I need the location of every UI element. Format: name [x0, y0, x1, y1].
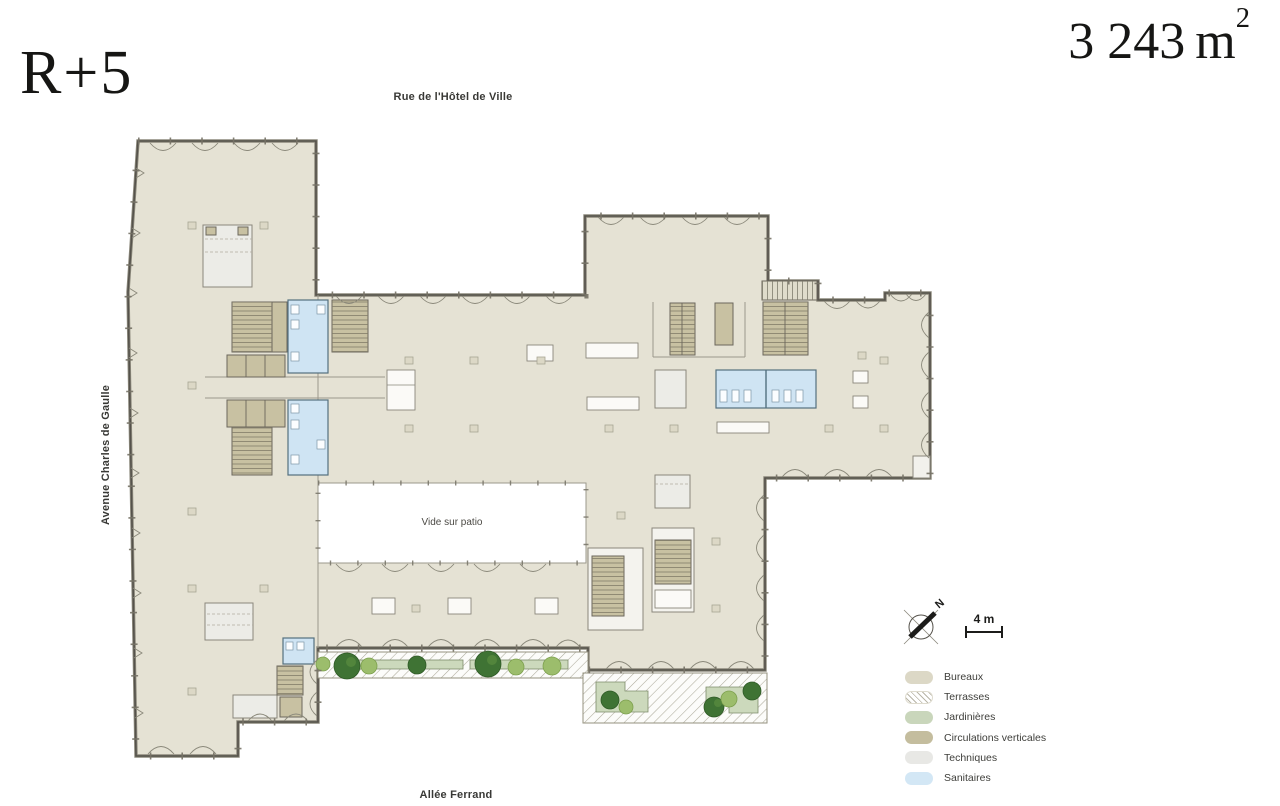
- legend-item-bureaux: Bureaux: [905, 667, 1046, 687]
- legend-label: Bureaux: [944, 671, 983, 683]
- legend-item-jardinieres: Jardinières: [905, 707, 1046, 727]
- floor-level-label: R+5: [20, 42, 133, 104]
- area-unit: m: [1195, 13, 1235, 70]
- legend-swatch-bureaux: [905, 671, 933, 684]
- scale-bar: [966, 626, 1002, 638]
- legend-label: Terrasses: [944, 691, 990, 703]
- legend-swatch-circulations: [905, 731, 933, 744]
- floor-plan-canvas: [0, 0, 1280, 806]
- legend-swatch-terrasses: [905, 691, 933, 704]
- street-label-top: Rue de l'Hôtel de Ville: [394, 91, 513, 103]
- legend-swatch-jardinieres: [905, 711, 933, 724]
- legend-label: Jardinières: [944, 711, 995, 723]
- legend-label: Circulations verticales: [944, 732, 1046, 744]
- area-value: 3 243: [1068, 13, 1185, 70]
- street-label-bottom: Allée Ferrand: [420, 789, 493, 801]
- legend-item-circulations: Circulations verticales: [905, 728, 1046, 748]
- patio-void-label: Vide sur patio: [422, 517, 483, 528]
- area-exponent: 2: [1236, 3, 1250, 34]
- legend-label: Techniques: [944, 752, 997, 764]
- legend-item-terrasses: Terrasses: [905, 687, 1046, 707]
- legend: Bureaux Terrasses Jardinières Circulatio…: [905, 667, 1046, 788]
- legend-item-sanitaires: Sanitaires: [905, 768, 1046, 788]
- north-compass-icon: [904, 610, 938, 644]
- legend-swatch-techniques: [905, 751, 933, 764]
- legend-swatch-sanitaires: [905, 772, 933, 785]
- legend-item-techniques: Techniques: [905, 748, 1046, 768]
- legend-label: Sanitaires: [944, 772, 991, 784]
- scale-bar-label: 4 m: [964, 612, 1004, 626]
- street-label-left: Avenue Charles de Gaulle: [100, 385, 112, 525]
- floor-plan-page: R+5 3 243m2 Rue de l'Hôtel de Ville Aven…: [0, 0, 1280, 806]
- surface-area-label: 3 243m2: [990, 16, 1250, 68]
